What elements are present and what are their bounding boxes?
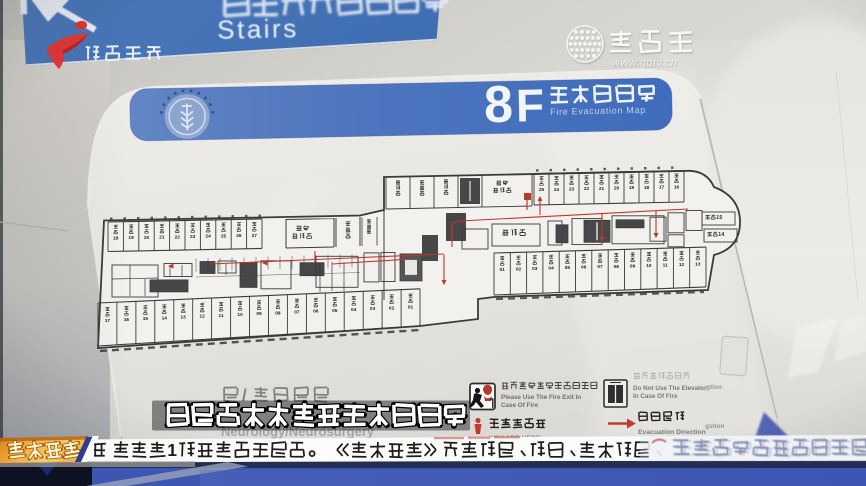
svg-text:1: 1 <box>167 440 177 460</box>
